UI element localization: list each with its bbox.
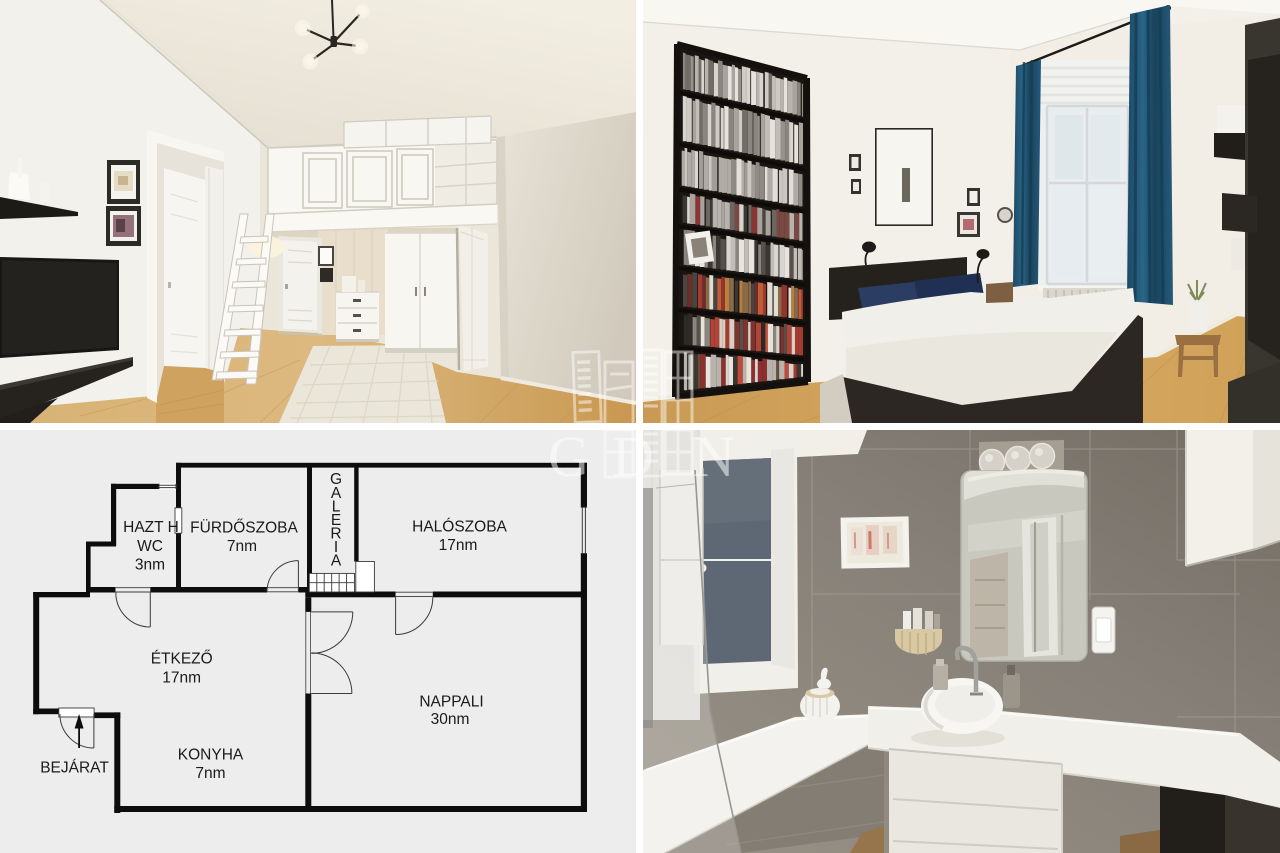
svg-text:HAZT H: HAZT H — [123, 519, 179, 536]
svg-text:7nm: 7nm — [227, 538, 257, 555]
svg-text:NAPPALI: NAPPALI — [419, 694, 483, 711]
svg-text:G: G — [548, 424, 590, 489]
svg-text:ÉTKEZŐ: ÉTKEZŐ — [151, 651, 213, 668]
svg-text:30nm: 30nm — [431, 711, 470, 728]
svg-text:N: N — [693, 424, 735, 489]
svg-text:KONYHA: KONYHA — [178, 747, 244, 764]
svg-text:FÜRDŐSZOBA: FÜRDŐSZOBA — [190, 519, 298, 537]
svg-text:7nm: 7nm — [195, 765, 225, 782]
svg-text:A: A — [331, 553, 342, 570]
svg-text:BEJÁRAT: BEJÁRAT — [40, 760, 109, 777]
svg-text:17nm: 17nm — [162, 670, 201, 687]
svg-text:WC: WC — [137, 538, 163, 555]
svg-text:3nm: 3nm — [135, 557, 165, 574]
svg-text:D: D — [612, 424, 654, 489]
svg-text:HALÓSZOBA: HALÓSZOBA — [412, 519, 507, 536]
svg-text:17nm: 17nm — [439, 537, 478, 554]
